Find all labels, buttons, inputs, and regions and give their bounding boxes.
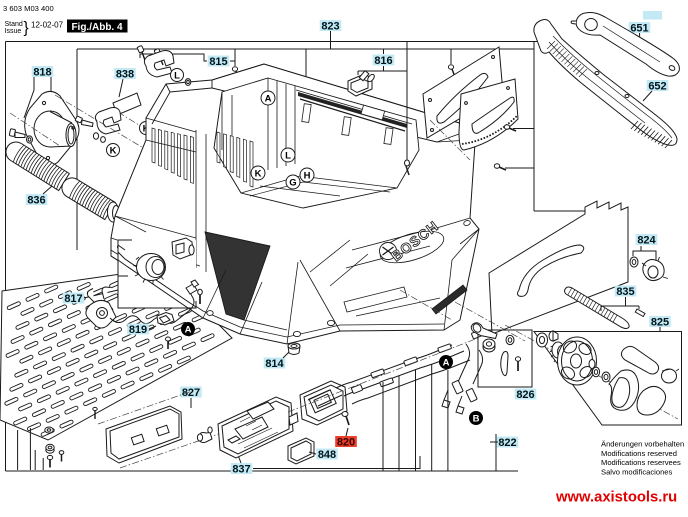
svg-text:823: 823 (321, 21, 339, 33)
svg-text:Modifications reserved: Modifications reserved (601, 449, 677, 458)
svg-text:L: L (285, 151, 291, 162)
svg-text:K: K (255, 169, 262, 180)
svg-text:818: 818 (33, 67, 51, 79)
svg-text:Issue: Issue (5, 28, 22, 35)
svg-text:836: 836 (27, 195, 45, 207)
svg-text:826: 826 (516, 389, 534, 401)
svg-text:A: A (185, 325, 192, 336)
svg-text:817: 817 (64, 293, 82, 305)
svg-text:www.axistools.ru: www.axistools.ru (555, 490, 677, 506)
svg-text:835: 835 (616, 286, 634, 298)
svg-text:A: A (443, 358, 450, 369)
svg-text:G: G (289, 178, 296, 189)
svg-text:838: 838 (116, 69, 134, 81)
svg-text:822: 822 (498, 437, 516, 449)
svg-text:Änderungen vorbehalten: Änderungen vorbehalten (601, 440, 684, 449)
svg-text:Modifications reservees: Modifications reservees (601, 458, 681, 467)
svg-text:Salvo modificaciones: Salvo modificaciones (601, 467, 673, 476)
svg-text:824: 824 (637, 235, 656, 247)
svg-text:A: A (265, 94, 272, 105)
svg-text:848: 848 (318, 449, 336, 461)
svg-text:827: 827 (182, 387, 200, 399)
svg-text:652: 652 (648, 81, 666, 93)
svg-text:819: 819 (129, 324, 147, 336)
svg-text:Stand: Stand (5, 21, 23, 28)
svg-text:3 603 M03 400: 3 603 M03 400 (3, 4, 54, 13)
svg-text:Fig./Abb. 4: Fig./Abb. 4 (71, 22, 123, 33)
svg-text:}: } (24, 20, 29, 37)
svg-text:814: 814 (265, 358, 284, 370)
svg-text:825: 825 (651, 317, 669, 329)
svg-text:12-02-07: 12-02-07 (31, 21, 64, 30)
svg-text:820: 820 (337, 437, 355, 449)
svg-text:816: 816 (374, 55, 392, 67)
svg-text:B: B (473, 414, 480, 425)
svg-text:815: 815 (209, 56, 227, 68)
svg-text:K: K (110, 146, 117, 157)
svg-text:H: H (304, 171, 311, 182)
svg-text:L: L (174, 71, 180, 82)
svg-text:837: 837 (232, 464, 250, 476)
